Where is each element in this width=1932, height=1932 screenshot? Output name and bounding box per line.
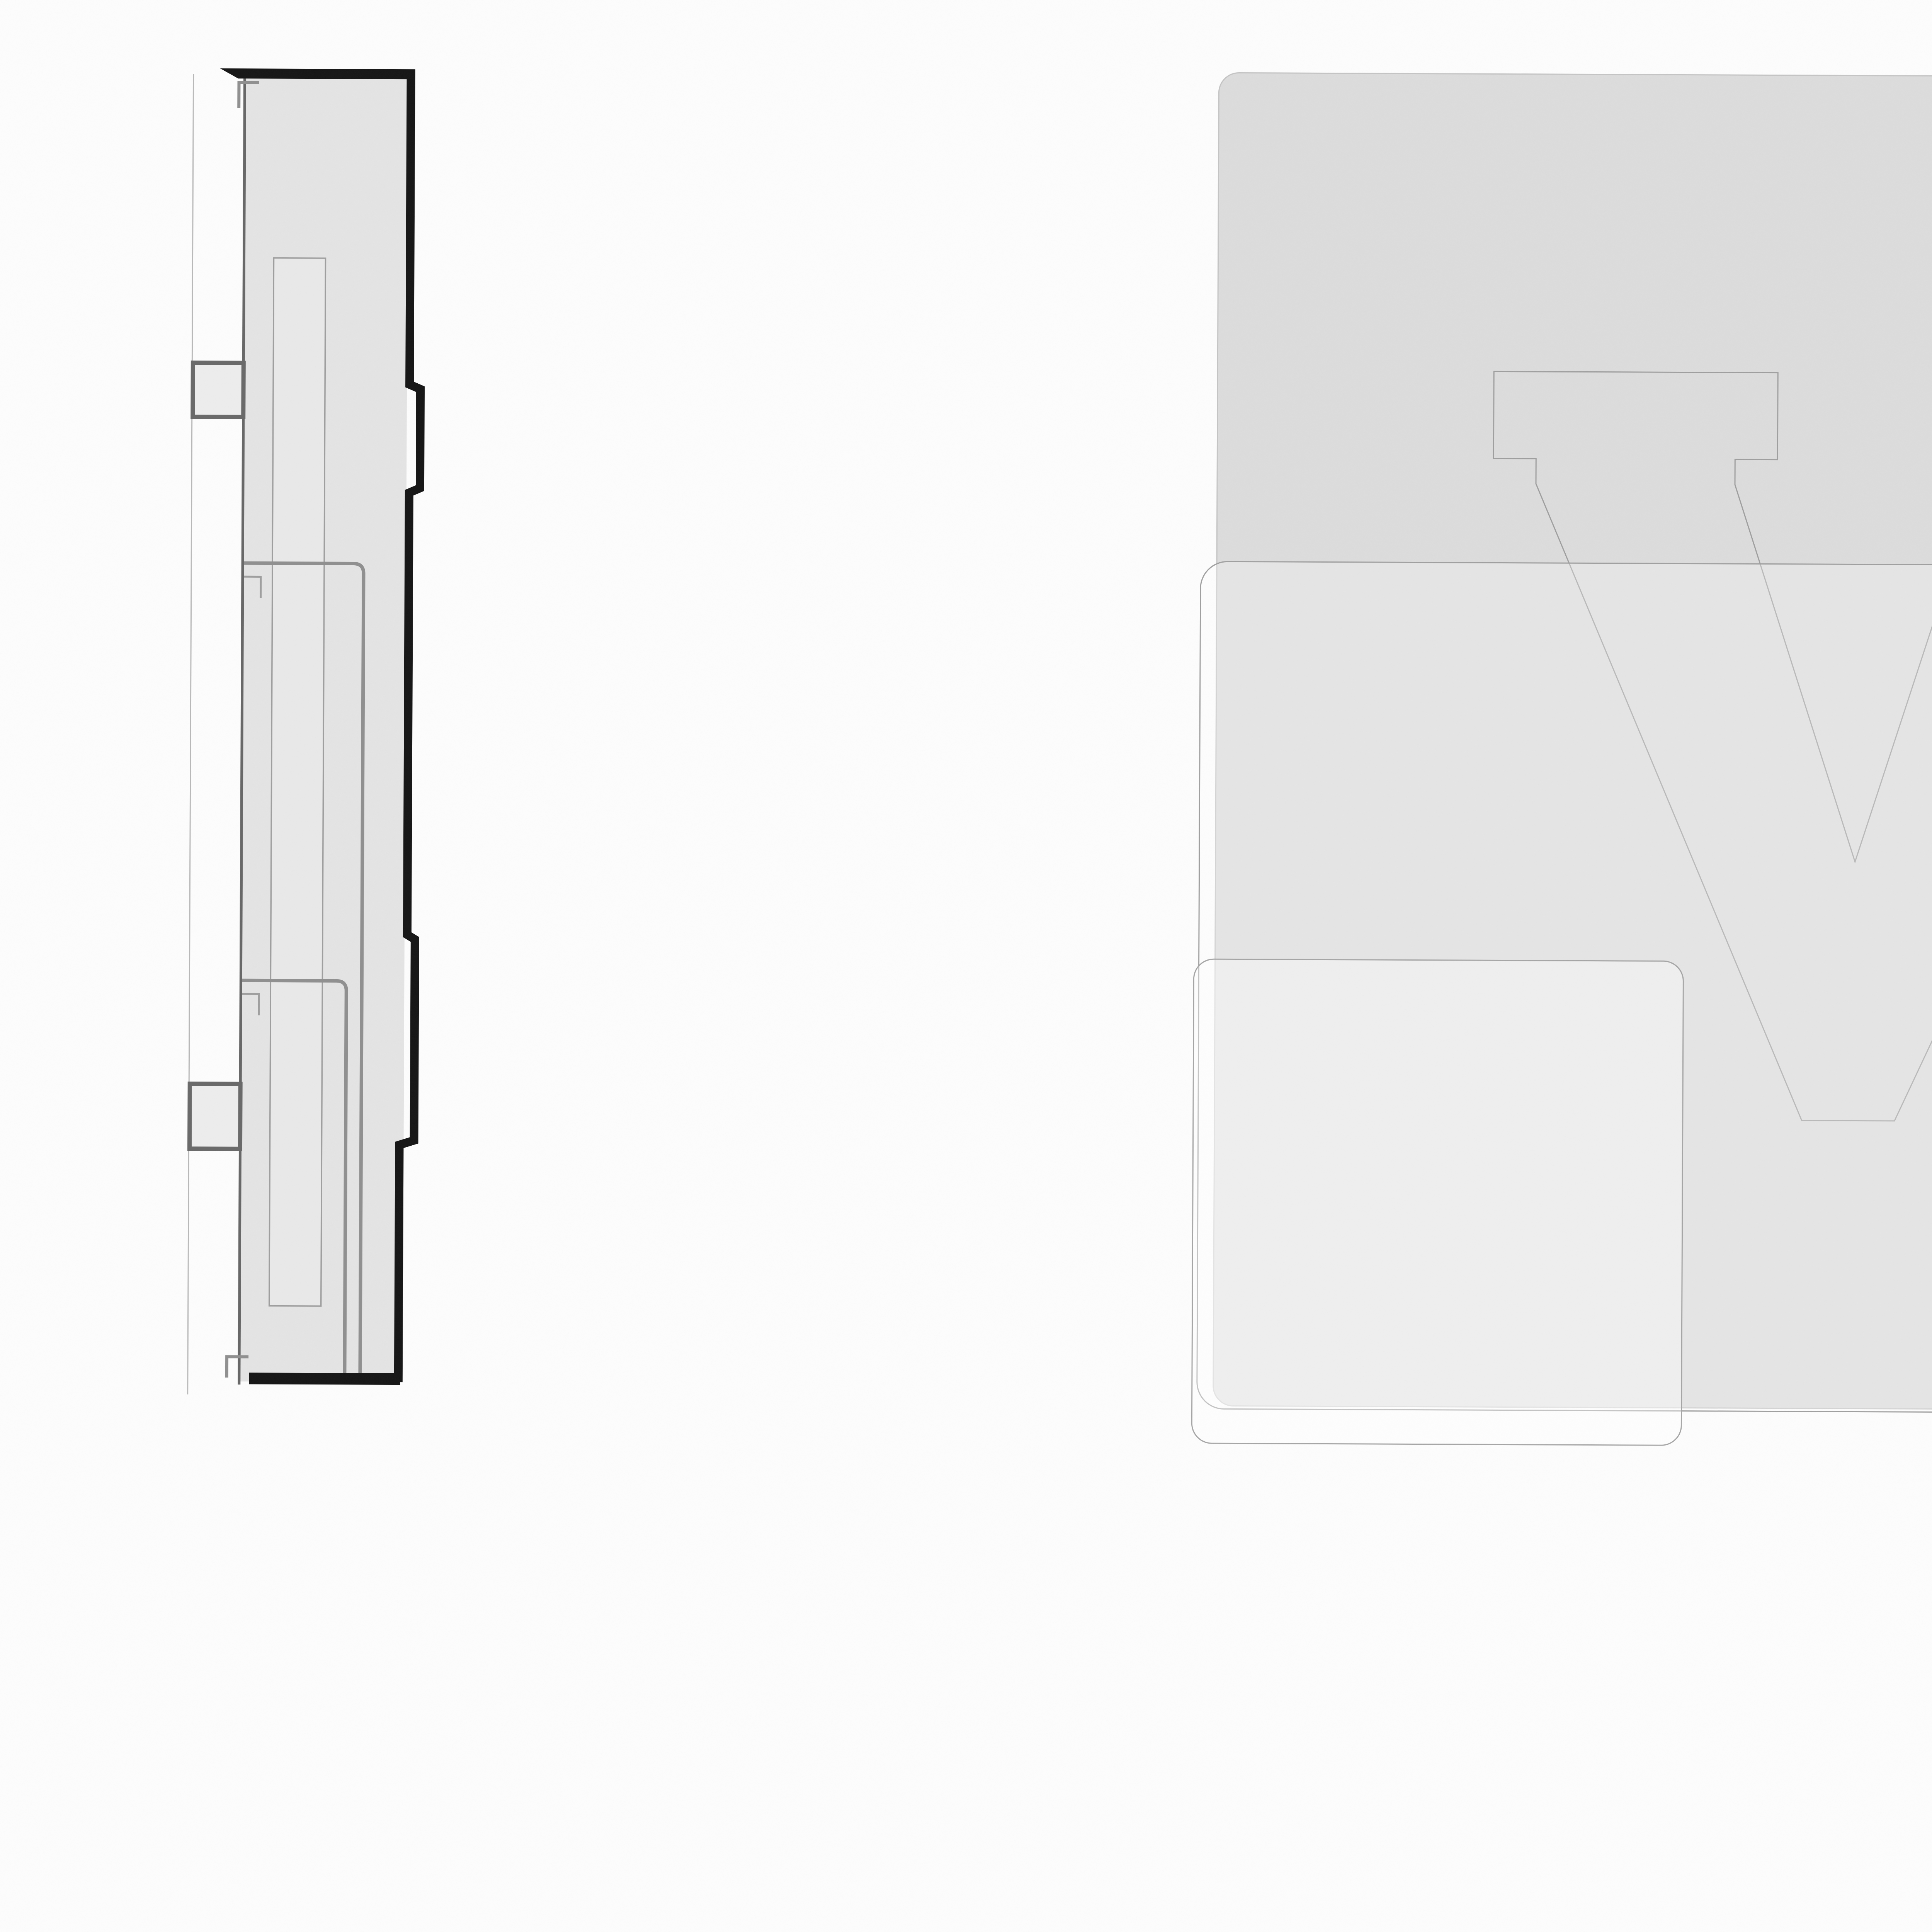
manual-page: Leuchtkästen Maßstab 1:2 4 xyxy=(0,0,1932,1932)
housing-top-edge xyxy=(220,68,415,79)
lamp-channel xyxy=(269,258,326,1306)
mounting-tab-lower xyxy=(189,1084,240,1149)
lightbox-front-view-drawing xyxy=(1182,61,1932,1462)
guide-line xyxy=(188,74,194,1395)
housing-bottom-edge xyxy=(249,1378,400,1379)
mounting-tab-upper xyxy=(193,363,244,417)
lightbox-side-section-drawing xyxy=(182,65,435,1399)
overlay-panel-small xyxy=(1192,959,1683,1446)
scanned-sheet: Leuchtkästen Maßstab 1:2 4 xyxy=(0,0,1932,1932)
